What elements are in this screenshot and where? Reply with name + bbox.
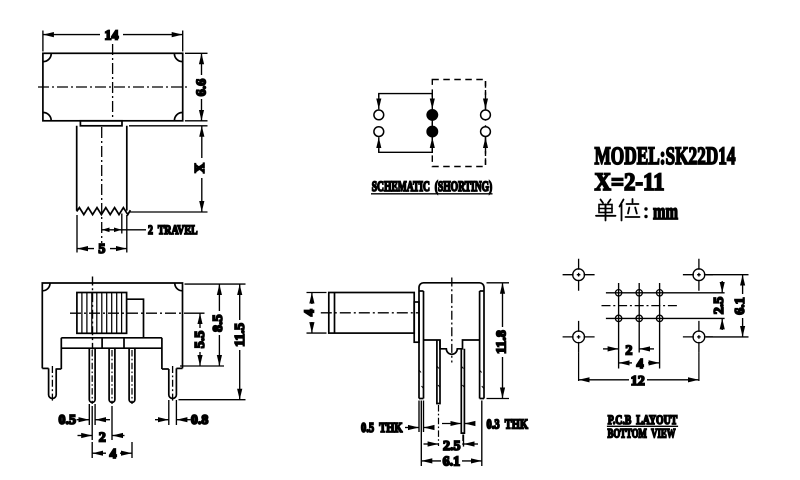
svg-text:6.1: 6.1 [443, 455, 461, 470]
svg-text:2: 2 [625, 343, 632, 358]
svg-text:4: 4 [110, 447, 117, 462]
svg-text:11.8: 11.8 [495, 330, 510, 354]
svg-text:BOTTOM VIEW: BOTTOM VIEW [608, 426, 676, 441]
svg-text:SCHEMATIC (SHORTING): SCHEMATIC (SHORTING) [372, 179, 493, 195]
svg-text:6.6: 6.6 [194, 79, 209, 97]
svg-text:5: 5 [98, 242, 105, 257]
svg-text:2.5: 2.5 [443, 439, 461, 454]
svg-text:MODEL:SK22D14: MODEL:SK22D14 [595, 143, 736, 170]
svg-text:4: 4 [303, 309, 318, 316]
svg-text:2: 2 [99, 430, 106, 445]
svg-text:8.5: 8.5 [211, 314, 226, 332]
svg-text:5.5: 5.5 [193, 331, 208, 349]
svg-text:0.5: 0.5 [59, 413, 77, 428]
svg-text:11.5: 11.5 [233, 323, 248, 347]
svg-text:X=2-11: X=2-11 [595, 169, 665, 196]
svg-text:6.1: 6.1 [733, 297, 748, 315]
svg-text:0.3 THK: 0.3 THK [487, 417, 529, 432]
svg-text:2.5: 2.5 [712, 297, 727, 315]
svg-text:12: 12 [631, 374, 645, 389]
svg-text:0.5 THK: 0.5 THK [361, 420, 403, 435]
svg-text:4: 4 [637, 357, 644, 372]
svg-text:0.8: 0.8 [191, 413, 209, 428]
svg-text:2 TRAVEL: 2 TRAVEL [148, 222, 198, 237]
svg-text:mm: mm [653, 199, 678, 224]
svg-text:X: X [193, 163, 208, 173]
svg-text:14: 14 [105, 29, 119, 44]
